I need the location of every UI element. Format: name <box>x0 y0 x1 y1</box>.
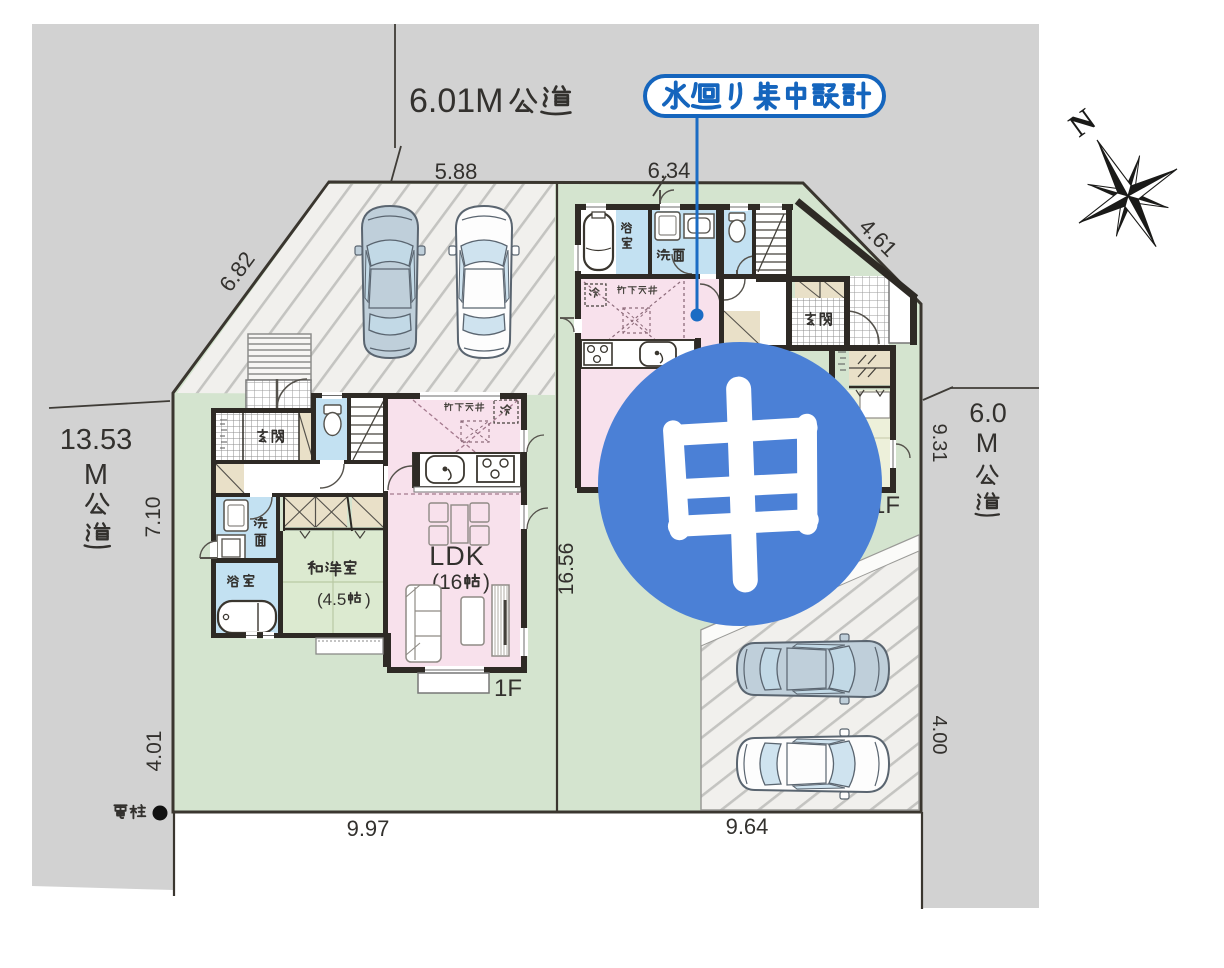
svg-text:1F: 1F <box>494 675 522 702</box>
svg-text:LDK: LDK <box>429 541 485 571</box>
svg-text:M: M <box>976 428 999 458</box>
svg-text:M: M <box>84 459 108 491</box>
svg-text:9.31: 9.31 <box>928 424 950 463</box>
svg-text:9.97: 9.97 <box>347 816 390 841</box>
svg-text:9.64: 9.64 <box>726 814 769 839</box>
svg-text:13.53: 13.53 <box>60 424 133 456</box>
svg-text:): ) <box>365 590 371 609</box>
svg-text:): ) <box>483 571 490 594</box>
svg-text:4.01: 4.01 <box>143 731 166 772</box>
svg-text:6.0: 6.0 <box>969 398 1007 428</box>
svg-text:6.01M: 6.01M <box>409 82 504 120</box>
svg-text:16.56: 16.56 <box>555 543 578 596</box>
svg-text:(4.5: (4.5 <box>317 590 346 609</box>
svg-text:7.10: 7.10 <box>142 497 165 538</box>
svg-text:6.34: 6.34 <box>648 158 691 183</box>
svg-text:4.00: 4.00 <box>928 716 950 755</box>
svg-text:5.88: 5.88 <box>435 159 478 184</box>
